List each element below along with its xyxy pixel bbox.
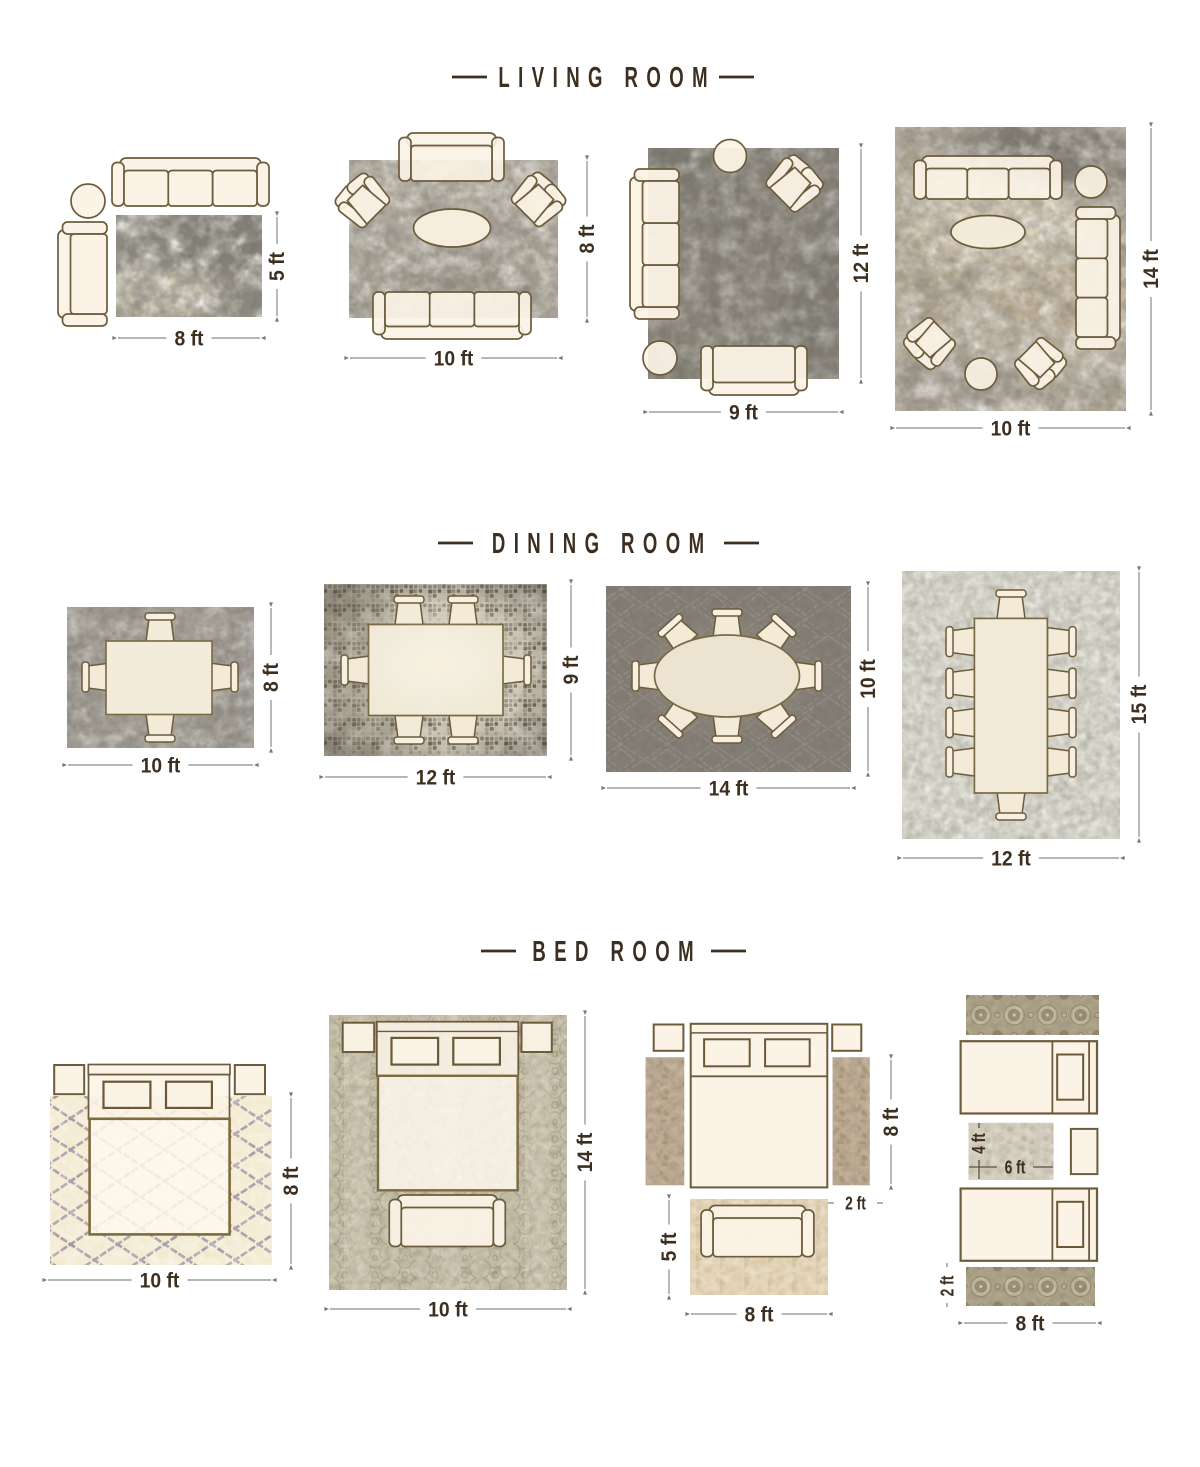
svg-text:12 ft: 12 ft xyxy=(850,243,873,283)
svg-text:BED ROOM: BED ROOM xyxy=(532,936,702,968)
svg-text:9 ft: 9 ft xyxy=(560,655,583,684)
svg-text:12 ft: 12 ft xyxy=(416,767,456,790)
svg-text:10 ft: 10 ft xyxy=(141,755,181,778)
svg-text:8 ft: 8 ft xyxy=(576,224,599,253)
svg-text:10 ft: 10 ft xyxy=(428,1299,468,1322)
svg-text:2 ft: 2 ft xyxy=(845,1194,866,1214)
svg-text:10 ft: 10 ft xyxy=(140,1270,180,1293)
svg-text:5 ft: 5 ft xyxy=(266,252,289,281)
svg-text:DINING ROOM: DINING ROOM xyxy=(492,528,713,560)
svg-text:4 ft: 4 ft xyxy=(969,1133,989,1154)
svg-text:10 ft: 10 ft xyxy=(434,348,474,371)
svg-text:8 ft: 8 ft xyxy=(1016,1313,1045,1336)
svg-text:10 ft: 10 ft xyxy=(857,659,880,699)
svg-text:14 ft: 14 ft xyxy=(1140,249,1163,289)
svg-text:9 ft: 9 ft xyxy=(729,402,758,425)
svg-text:8 ft: 8 ft xyxy=(260,663,283,692)
svg-text:6 ft: 6 ft xyxy=(1005,1158,1026,1178)
svg-text:5 ft: 5 ft xyxy=(658,1232,681,1261)
svg-text:14 ft: 14 ft xyxy=(709,778,749,801)
svg-text:8 ft: 8 ft xyxy=(745,1304,774,1327)
svg-text:10 ft: 10 ft xyxy=(991,418,1031,441)
svg-text:2 ft: 2 ft xyxy=(938,1275,958,1296)
svg-text:15 ft: 15 ft xyxy=(1128,684,1151,724)
svg-text:LIVING ROOM: LIVING ROOM xyxy=(498,62,716,94)
svg-text:8 ft: 8 ft xyxy=(880,1107,903,1136)
svg-text:8 ft: 8 ft xyxy=(175,328,204,351)
svg-text:14 ft: 14 ft xyxy=(574,1132,597,1172)
svg-text:8 ft: 8 ft xyxy=(280,1166,303,1195)
svg-text:12 ft: 12 ft xyxy=(991,848,1031,871)
